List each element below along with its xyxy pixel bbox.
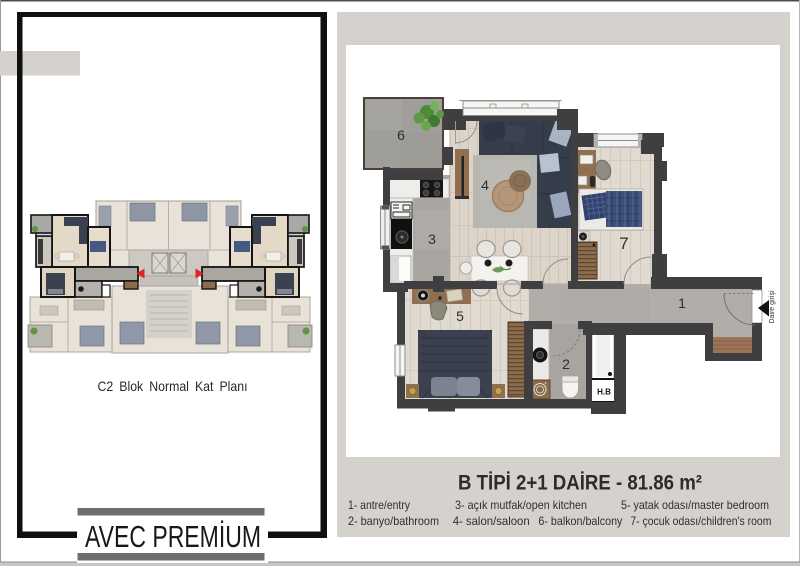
svg-text:4- salon/saloon: 4- salon/saloon bbox=[453, 514, 530, 528]
svg-text:6- balkon/balcony: 6- balkon/balcony bbox=[538, 514, 622, 528]
svg-text:AVEC PREMİUM: AVEC PREMİUM bbox=[85, 519, 261, 554]
svg-text:B TİPİ 2+1 DAİRE - 81.86 m²: B TİPİ 2+1 DAİRE - 81.86 m² bbox=[458, 472, 702, 495]
svg-text:3- açık mutfak/open kitchen: 3- açık mutfak/open kitchen bbox=[455, 498, 587, 512]
svg-text:2: 2 bbox=[562, 356, 570, 372]
svg-text:6: 6 bbox=[397, 127, 405, 143]
svg-text:H.B: H.B bbox=[597, 388, 611, 397]
svg-text:7- çocuk odası/children's room: 7- çocuk odası/children's room bbox=[630, 514, 771, 528]
svg-text:5: 5 bbox=[456, 308, 464, 324]
svg-text:3: 3 bbox=[428, 231, 436, 247]
svg-text:Daire girişi: Daire girişi bbox=[769, 290, 776, 324]
svg-text:4: 4 bbox=[481, 177, 489, 193]
svg-text:C2 Blok Normal Kat Planı: C2 Blok Normal Kat Planı bbox=[98, 378, 248, 394]
svg-text:7: 7 bbox=[619, 234, 628, 253]
svg-text:5- yatak odası/master bedroom: 5- yatak odası/master bedroom bbox=[621, 498, 769, 512]
svg-text:1: 1 bbox=[678, 295, 686, 311]
svg-text:2- banyo/bathroom: 2- banyo/bathroom bbox=[348, 514, 439, 528]
svg-text:1- antre/entry: 1- antre/entry bbox=[348, 498, 410, 512]
